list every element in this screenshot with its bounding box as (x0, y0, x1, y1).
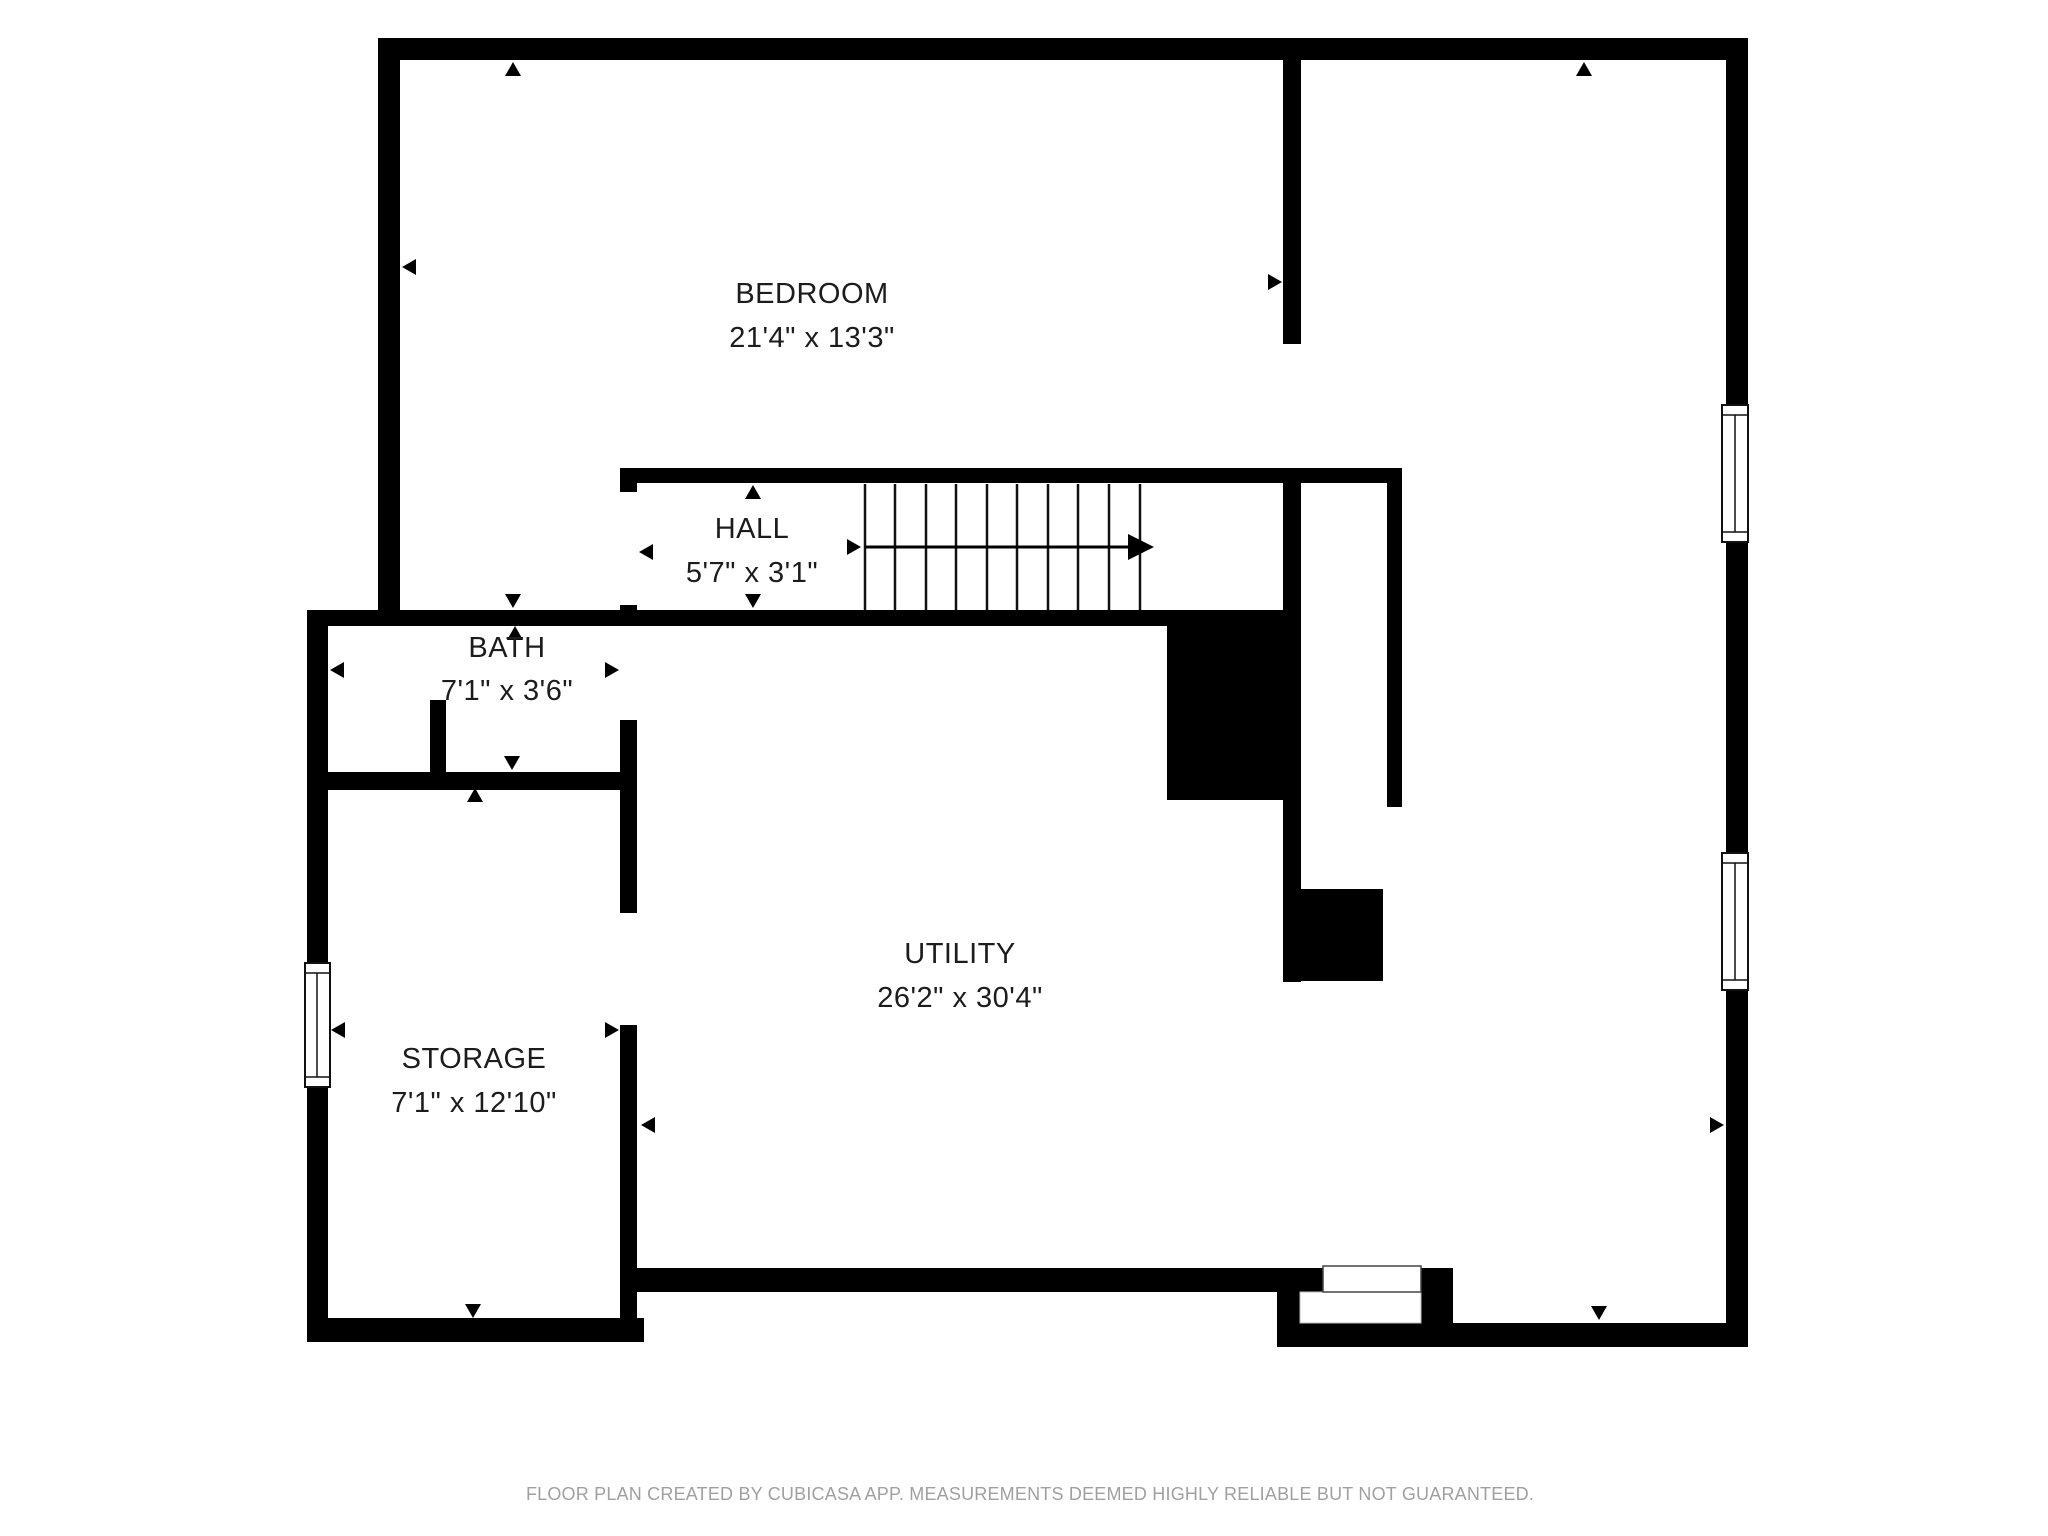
footer-disclaimer: FLOOR PLAN CREATED BY CUBICASA APP. MEAS… (526, 1484, 1534, 1504)
extent-arrow-up (505, 62, 521, 76)
extent-arrow-right (1710, 1117, 1724, 1133)
masked-area-understairs (1167, 610, 1298, 800)
room-dims-storage: 7'1" x 12'10" (391, 1087, 557, 1119)
wall-bath-partition-stub (430, 700, 446, 772)
room-dims-bath: 7'1" x 3'6" (441, 675, 573, 707)
extent-arrow-left (331, 1022, 345, 1038)
wall-hall-bath-horizontal (307, 610, 1298, 626)
wall-bedroom-right-upper (1283, 60, 1301, 344)
room-name-bath: BATH (468, 632, 545, 664)
extent-arrow-up (1576, 62, 1592, 76)
room-labels: BEDROOM 21'4" x 13'3" HALL 5'7" x 3'1" B… (391, 278, 1043, 1119)
extent-arrow-left (641, 1117, 655, 1133)
wall-hall-left-bottom (620, 605, 637, 626)
wall-utility-bottom (620, 1268, 1323, 1292)
wall-storage-utility-segment (620, 1025, 637, 1342)
wall-bottom-outer-storage (307, 1318, 644, 1342)
extent-arrow-down (465, 1304, 481, 1318)
extent-arrow-up (745, 485, 761, 499)
room-name-utility: UTILITY (904, 938, 1015, 970)
wall-bottom-outer-right (1277, 1323, 1748, 1347)
extent-arrow-right (847, 539, 861, 555)
extent-arrow-down (1591, 1306, 1607, 1320)
floor-plan-page: BEDROOM 21'4" x 13'3" HALL 5'7" x 3'1" B… (0, 0, 2048, 1536)
extent-arrow-down (745, 594, 761, 608)
wall-top-outer (378, 38, 1748, 60)
staircase (865, 484, 1154, 610)
window-right-upper (1722, 405, 1748, 542)
extent-arrow-left (639, 544, 653, 560)
extent-arrow-down (505, 594, 521, 608)
room-name-bedroom: BEDROOM (735, 278, 888, 310)
room-dims-hall: 5'7" x 3'1" (686, 557, 818, 589)
extent-arrow-down (504, 756, 520, 770)
window-storage-left (305, 963, 330, 1087)
extent-arrow-up (467, 788, 483, 802)
entry-door-threshold (1323, 1266, 1421, 1292)
extent-arrow-right (1268, 274, 1282, 290)
masked-area-core (1301, 889, 1383, 981)
wall-bath-storage-divider (307, 772, 637, 790)
extent-arrow-right (605, 662, 619, 678)
room-name-hall: HALL (715, 513, 790, 545)
entry-alcove (1300, 1292, 1421, 1323)
wall-stair-right (1387, 483, 1402, 807)
window-right-lower (1722, 853, 1748, 990)
wall-right-outer (1726, 38, 1748, 1347)
extent-arrow-left (330, 662, 344, 678)
extent-arrow-left (402, 259, 416, 275)
room-dims-utility: 26'2" x 30'4" (877, 982, 1043, 1014)
wall-bath-utility-segment (620, 720, 637, 913)
room-name-storage: STORAGE (402, 1043, 547, 1075)
floor-plan-canvas: BEDROOM 21'4" x 13'3" HALL 5'7" x 3'1" B… (0, 0, 2048, 1536)
wall-left-outer-bedroom (378, 38, 400, 626)
room-dims-bedroom: 21'4" x 13'3" (729, 322, 895, 354)
extent-arrow-right (605, 1022, 619, 1038)
